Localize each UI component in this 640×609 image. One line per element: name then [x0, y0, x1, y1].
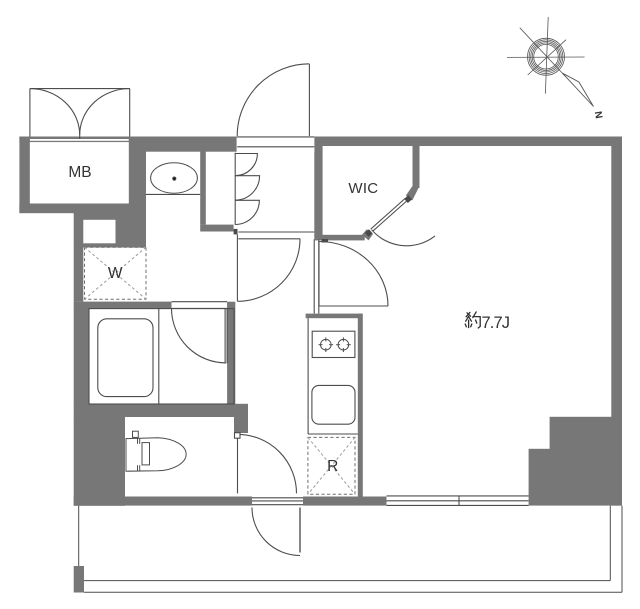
svg-text:MB: MB — [68, 164, 91, 181]
svg-text:R: R — [327, 458, 338, 475]
svg-text:7.7J: 7.7J — [482, 314, 510, 332]
svg-text:W: W — [108, 265, 123, 282]
svg-text:WIC: WIC — [348, 180, 378, 197]
